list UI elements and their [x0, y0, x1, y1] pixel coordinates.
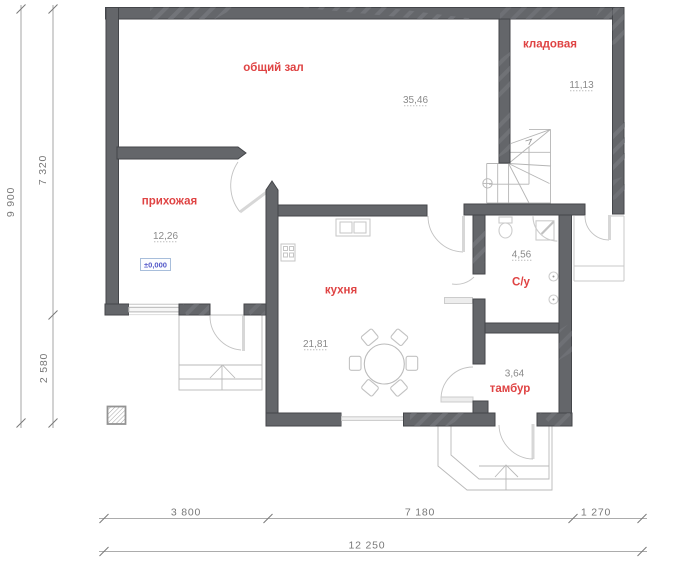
svg-text:тамбур: тамбур [490, 383, 531, 395]
svg-text:7 180: 7 180 [405, 507, 435, 519]
svg-text:2 580: 2 580 [38, 353, 50, 383]
svg-text:кухня: кухня [325, 285, 357, 297]
svg-text:11,13: 11,13 [569, 80, 594, 91]
svg-text:общий зал: общий зал [243, 62, 303, 74]
svg-text:прихожая: прихожая [142, 196, 197, 208]
svg-text:3 800: 3 800 [171, 507, 201, 519]
svg-text:12,26: 12,26 [153, 231, 178, 242]
svg-text:21,81: 21,81 [303, 339, 328, 350]
svg-text:3,64: 3,64 [505, 369, 525, 380]
svg-text:1 270: 1 270 [581, 507, 611, 519]
svg-text:7 320: 7 320 [37, 155, 49, 185]
svg-text:12 250: 12 250 [349, 540, 386, 552]
svg-text:±0,000: ±0,000 [144, 260, 167, 269]
svg-text:35,46: 35,46 [403, 95, 428, 106]
svg-text:4,56: 4,56 [512, 250, 532, 261]
svg-text:С/у: С/у [512, 277, 531, 289]
svg-text:кладовая: кладовая [523, 39, 577, 51]
svg-text:9 900: 9 900 [5, 187, 17, 217]
